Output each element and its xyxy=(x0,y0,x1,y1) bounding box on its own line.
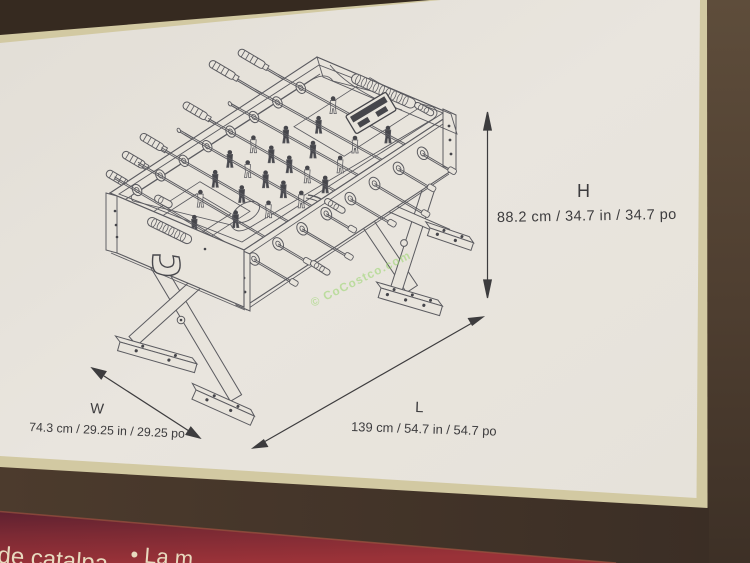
svg-text:H: H xyxy=(577,181,590,201)
svg-text:W: W xyxy=(90,401,105,418)
svg-text:L: L xyxy=(415,399,424,416)
svg-text:88.2 cm / 34.7 in / 34.7 po: 88.2 cm / 34.7 in / 34.7 po xyxy=(497,207,677,226)
